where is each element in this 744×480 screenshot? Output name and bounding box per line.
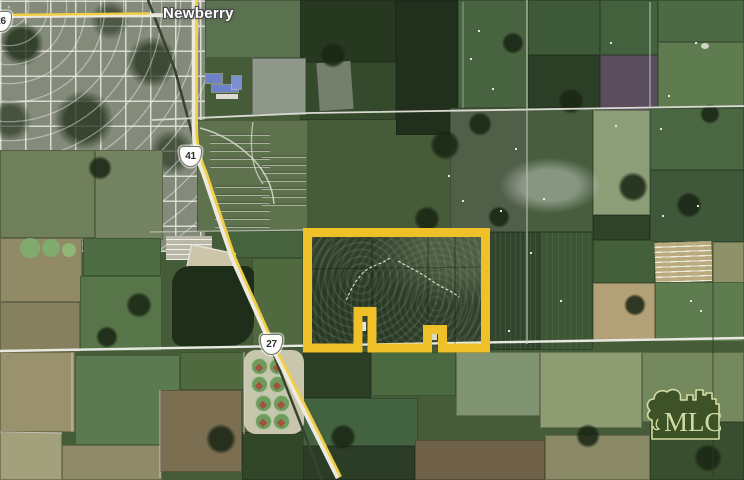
route-shield-27-number: 27 [266, 339, 277, 350]
parcel-boundary [308, 233, 486, 349]
aerial-map: Newberry 26 41 27 MLC [0, 0, 744, 480]
mlc-logo-text: MLC [664, 407, 722, 437]
parcel-boundary-layer [0, 0, 744, 480]
route-shield-41-number: 41 [185, 151, 196, 162]
town-label: Newberry [163, 5, 234, 22]
mlc-logo: MLC [644, 386, 722, 442]
route-shield-26-number: 26 [0, 16, 6, 27]
